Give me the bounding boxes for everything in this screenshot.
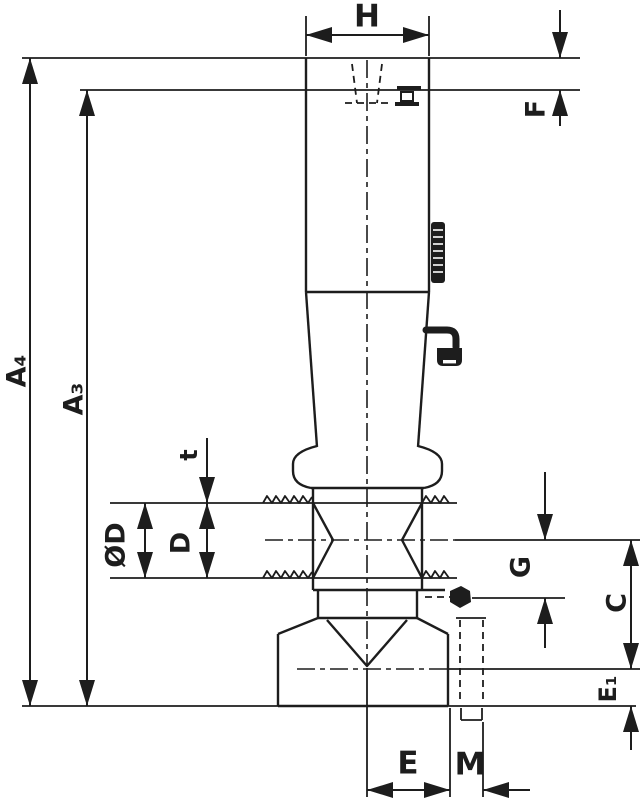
taper-angle-callout-icon (426, 330, 462, 366)
dim-label-e: E (397, 749, 418, 780)
hidden-lines (345, 64, 483, 704)
dim-label-m: M (455, 750, 486, 781)
extension-lines (22, 16, 640, 797)
leader-arrow-blob (450, 586, 471, 608)
dim-label-f: F (523, 100, 550, 118)
arrowheads (22, 27, 639, 798)
dim-label-h: H (354, 2, 380, 33)
dim-label-e1: E₁ (596, 676, 620, 703)
dim-label-a3: A₃ (61, 383, 88, 416)
dim-label-a4: A₄ (4, 355, 31, 388)
dim-label-od: ØD (103, 522, 130, 567)
drawing-svg (0, 0, 644, 800)
dim-label-g: G (508, 556, 535, 578)
thread-zone-marker-icon (431, 222, 445, 283)
dim-label-t: t (177, 449, 201, 460)
drawing-canvas: H F A₄ A₃ ØD D t G C E₁ E M (0, 0, 644, 800)
dim-label-c: C (604, 593, 631, 613)
part-outline (278, 58, 448, 706)
dim-label-d: D (168, 532, 195, 554)
dimension-lines (30, 10, 631, 790)
